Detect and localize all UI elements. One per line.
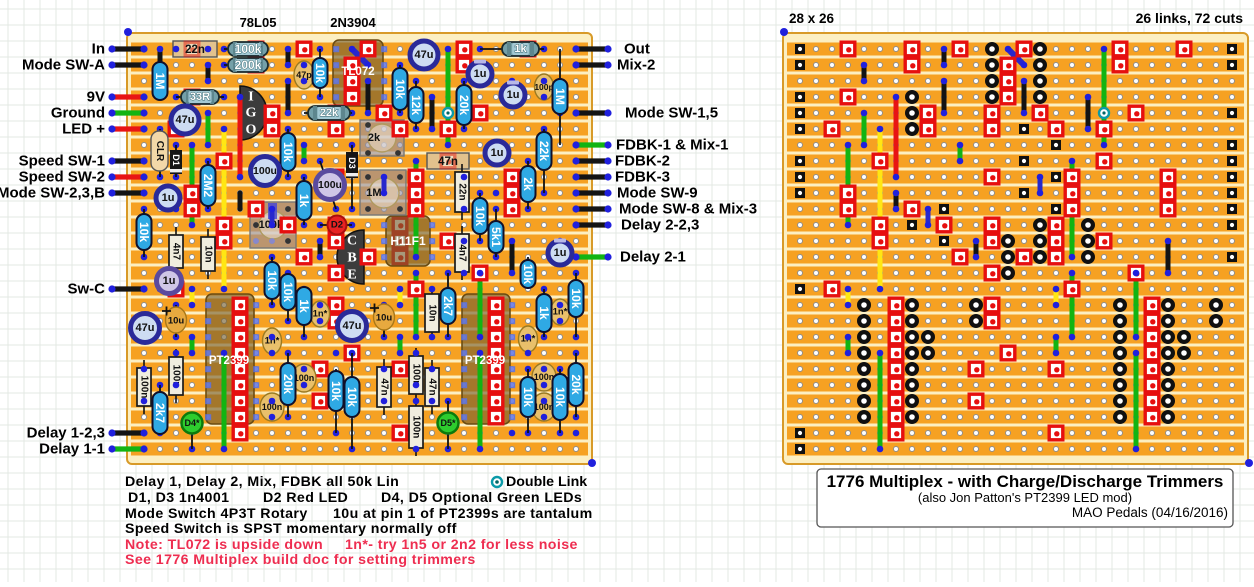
svg-text:Note: TL072 is upside down: Note: TL072 is upside down (125, 537, 323, 553)
svg-text:1M: 1M (153, 73, 167, 90)
svg-text:5k1: 5k1 (489, 227, 503, 247)
svg-text:47u: 47u (415, 49, 434, 61)
svg-text:Mode SW-9: Mode SW-9 (617, 185, 698, 202)
svg-text:10n: 10n (203, 245, 214, 262)
svg-text:200k: 200k (235, 58, 262, 72)
svg-text:Mode SW-A: Mode SW-A (22, 57, 105, 74)
svg-text:100u: 100u (318, 179, 342, 191)
svg-text:I: I (248, 90, 253, 105)
svg-text:100n: 100n (139, 376, 150, 399)
svg-text:22k: 22k (320, 107, 339, 119)
svg-text:22n: 22n (457, 183, 468, 200)
svg-text:10k: 10k (281, 282, 295, 302)
svg-text:100k: 100k (235, 42, 262, 56)
svg-text:100n: 100n (534, 372, 555, 382)
svg-text:Mode SW-2,3,B: Mode SW-2,3,B (0, 185, 105, 202)
svg-text:10u: 10u (376, 313, 393, 324)
svg-text:D4, D5 Optional Green LEDs: D4, D5 Optional Green LEDs (381, 490, 582, 506)
svg-text:100u: 100u (253, 165, 277, 177)
svg-text:CLR: CLR (154, 141, 165, 162)
svg-text:D5*: D5* (440, 418, 456, 428)
svg-text:100n: 100n (411, 416, 422, 439)
svg-text:1n*- try 1n5 or 2n2 for less n: 1n*- try 1n5 or 2n2 for less noise (345, 537, 578, 553)
svg-text:D2: D2 (331, 220, 343, 231)
svg-text:20k: 20k (281, 374, 295, 394)
svg-text:Delay 1, Delay 2, Mix, FDBK al: Delay 1, Delay 2, Mix, FDBK all 50k Lin (125, 474, 399, 490)
svg-text:1k: 1k (514, 43, 527, 55)
svg-text:1u: 1u (162, 192, 175, 204)
svg-text:H11F1: H11F1 (390, 234, 426, 248)
svg-text:10k: 10k (473, 206, 487, 226)
svg-text:Speed Switch is SPST momentary: Speed Switch is SPST momentary normally … (125, 521, 457, 537)
svg-text:10k: 10k (265, 270, 279, 290)
svg-text:10k: 10k (313, 63, 327, 83)
svg-text:10k: 10k (521, 264, 535, 284)
svg-text:See 1776 Multiplex build doc f: See 1776 Multiplex build doc for setting… (125, 552, 476, 568)
svg-text:1k: 1k (297, 299, 311, 313)
svg-text:1u: 1u (163, 275, 176, 287)
svg-text:PT2399: PT2399 (209, 355, 249, 367)
svg-text:(also Jon Patton's PT2399 LED: (also Jon Patton's PT2399 LED mod) (918, 490, 1132, 505)
svg-text:2k7: 2k7 (441, 296, 455, 316)
svg-text:28 x 26: 28 x 26 (789, 11, 835, 26)
svg-text:G: G (246, 106, 257, 121)
svg-text:47n: 47n (427, 378, 438, 395)
svg-text:LED +: LED + (62, 121, 105, 138)
svg-text:10k: 10k (281, 142, 295, 162)
svg-text:10k: 10k (553, 387, 567, 407)
svg-text:B: B (347, 251, 356, 266)
svg-text:2M2: 2M2 (201, 174, 215, 198)
svg-text:PT2399: PT2399 (465, 355, 505, 367)
svg-text:4n7: 4n7 (457, 244, 468, 262)
svg-text:1u: 1u (507, 89, 520, 101)
svg-text:22n: 22n (185, 44, 205, 56)
svg-text:10k: 10k (521, 387, 535, 407)
svg-text:26 links, 72 cuts: 26 links, 72 cuts (1136, 10, 1244, 26)
svg-text:Delay 2-1: Delay 2-1 (620, 249, 686, 266)
svg-text:2k: 2k (368, 132, 381, 144)
svg-text:12k: 12k (409, 95, 423, 115)
svg-text:Delay 2-2,3: Delay 2-2,3 (621, 217, 699, 234)
svg-text:33R: 33R (190, 91, 210, 103)
svg-text:1776 Multiplex - with Charge/D: 1776 Multiplex - with Charge/Discharge T… (827, 472, 1224, 491)
svg-text:Ground: Ground (51, 105, 105, 122)
svg-text:D2 Red LED: D2 Red LED (263, 490, 348, 506)
svg-text:D1, D3 1n4001: D1, D3 1n4001 (128, 490, 229, 506)
svg-text:9V: 9V (87, 89, 105, 106)
svg-text:1M: 1M (553, 88, 567, 105)
svg-text:Delay 1-2,3: Delay 1-2,3 (27, 425, 105, 442)
svg-text:10k: 10k (569, 288, 583, 308)
svg-text:Sw-C: Sw-C (68, 281, 106, 298)
svg-text:22k: 22k (537, 141, 551, 161)
svg-text:47n: 47n (438, 156, 458, 168)
svg-text:Out: Out (624, 41, 650, 58)
svg-text:1u: 1u (474, 68, 487, 80)
svg-text:D3: D3 (347, 157, 357, 169)
svg-text:47n: 47n (379, 378, 390, 395)
svg-text:10k: 10k (329, 381, 343, 401)
svg-text:FDBK-3: FDBK-3 (615, 169, 670, 186)
svg-text:Speed SW-2: Speed SW-2 (19, 169, 105, 186)
svg-text:MAO Pedals (04/16/2016): MAO Pedals (04/16/2016) (1072, 505, 1228, 520)
svg-text:D1: D1 (171, 154, 181, 166)
svg-text:Mix-2: Mix-2 (617, 57, 655, 74)
svg-text:10k: 10k (393, 79, 407, 99)
svg-text:78L05: 78L05 (240, 15, 277, 30)
svg-text:1k: 1k (537, 306, 551, 320)
svg-text:47u: 47u (176, 114, 195, 126)
svg-text:Mode Switch 4P3T Rotary: Mode Switch 4P3T Rotary (125, 506, 308, 522)
svg-text:100n: 100n (294, 373, 315, 383)
svg-text:FDBK-2: FDBK-2 (615, 153, 670, 170)
svg-text:O: O (246, 123, 257, 138)
svg-text:47u: 47u (136, 322, 155, 334)
svg-text:10u at pin 1 of PT2399s are ta: 10u at pin 1 of PT2399s are tantalum (333, 506, 593, 522)
svg-text:1u: 1u (554, 247, 567, 259)
svg-text:FDBK-1 & Mix-1: FDBK-1 & Mix-1 (616, 137, 729, 154)
svg-text:1u: 1u (491, 147, 504, 159)
svg-text:10u: 10u (168, 316, 185, 327)
svg-text:4n7: 4n7 (171, 243, 182, 261)
svg-text:1k: 1k (297, 194, 311, 208)
svg-text:C: C (347, 234, 357, 249)
svg-text:Speed SW-1: Speed SW-1 (19, 153, 105, 170)
svg-text:Delay 1-1: Delay 1-1 (39, 441, 105, 458)
svg-text:Double Link: Double Link (506, 474, 587, 490)
svg-text:2k: 2k (521, 177, 535, 191)
svg-text:Mode SW-8 & Mix-3: Mode SW-8 & Mix-3 (619, 201, 757, 218)
svg-text:E: E (347, 268, 356, 283)
svg-text:2N3904: 2N3904 (330, 15, 376, 30)
svg-text:10k: 10k (137, 222, 151, 242)
svg-text:TL072: TL072 (341, 66, 374, 78)
svg-text:10n: 10n (427, 304, 438, 321)
svg-text:D4*: D4* (184, 418, 200, 428)
svg-text:2k7: 2k7 (153, 403, 167, 423)
svg-text:In: In (92, 41, 105, 58)
svg-text:10k: 10k (345, 387, 359, 407)
svg-text:20k: 20k (457, 95, 471, 115)
svg-text:Mode SW-1,5: Mode SW-1,5 (625, 105, 718, 122)
svg-text:20k: 20k (569, 374, 583, 394)
svg-text:47u: 47u (343, 320, 362, 332)
